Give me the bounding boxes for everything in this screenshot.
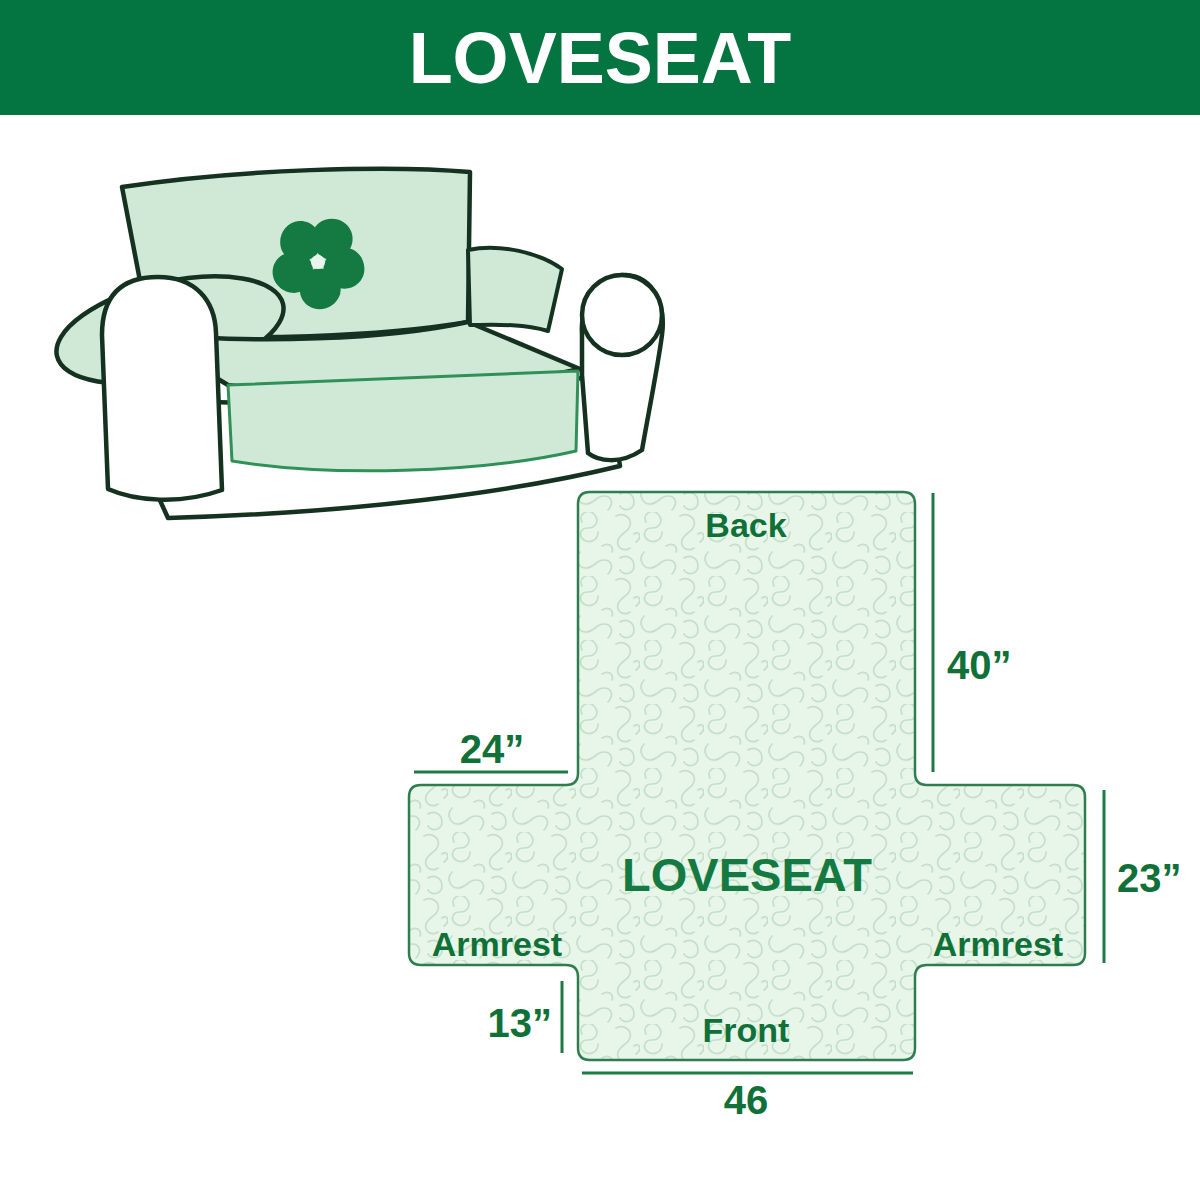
sofa-right-arm-inner-cover bbox=[468, 248, 562, 331]
front-height-dimension: 13” bbox=[488, 1001, 553, 1045]
armrest-width-dimension: 24” bbox=[460, 727, 525, 771]
back-height-dimension: 40” bbox=[947, 643, 1012, 687]
front-width-dimension: 46 bbox=[724, 1078, 769, 1122]
banner-title: LOVESEAT bbox=[409, 22, 792, 94]
loveseat-illustration bbox=[50, 155, 670, 535]
cover-cross-shape bbox=[409, 492, 1085, 1060]
cover-layout-svg: Back LOVESEAT Armrest Armrest Front 40” … bbox=[380, 480, 1200, 1140]
sofa-right-arm-roll bbox=[582, 275, 662, 355]
front-panel-label: Front bbox=[703, 1011, 790, 1049]
title-banner: LOVESEAT bbox=[0, 0, 1200, 115]
loveseat-illustration-svg bbox=[50, 155, 670, 535]
back-panel-label: Back bbox=[705, 506, 786, 544]
center-loveseat-label: LOVESEAT bbox=[622, 848, 872, 901]
armrest-height-dimension: 23” bbox=[1117, 856, 1182, 900]
armrest-left-label: Armrest bbox=[432, 925, 562, 963]
armrest-right-label: Armrest bbox=[933, 925, 1063, 963]
cover-layout-diagram: Back LOVESEAT Armrest Armrest Front 40” … bbox=[380, 480, 1200, 1140]
sofa-left-arm-front bbox=[102, 277, 222, 500]
sofa-front-skirt-cover bbox=[228, 371, 578, 471]
